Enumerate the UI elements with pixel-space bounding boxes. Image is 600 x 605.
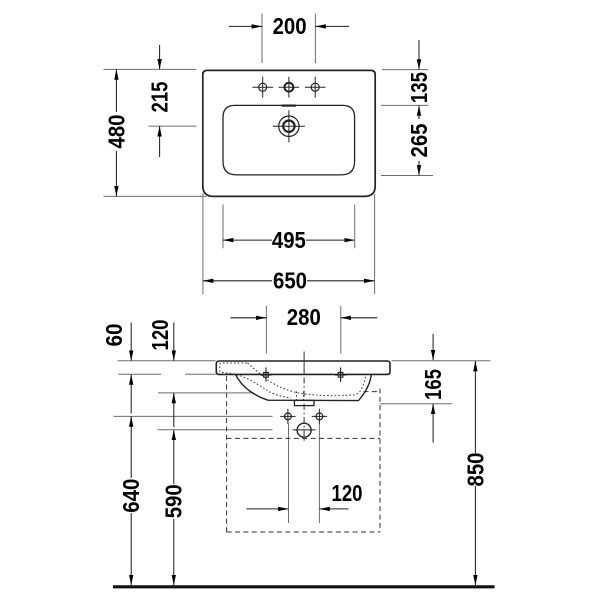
svg-text:280: 280	[287, 304, 321, 330]
svg-text:60: 60	[101, 324, 127, 347]
svg-text:215: 215	[147, 81, 173, 112]
svg-text:650: 650	[273, 268, 307, 294]
svg-text:200: 200	[273, 13, 307, 39]
svg-text:850: 850	[462, 453, 488, 487]
svg-text:640: 640	[118, 479, 144, 513]
svg-text:120: 120	[332, 480, 363, 506]
svg-text:165: 165	[420, 369, 446, 400]
svg-text:480: 480	[103, 115, 129, 149]
svg-text:590: 590	[161, 484, 187, 518]
svg-text:265: 265	[406, 123, 432, 157]
svg-text:135: 135	[406, 72, 432, 103]
svg-text:495: 495	[272, 227, 306, 253]
svg-text:120: 120	[147, 320, 173, 351]
